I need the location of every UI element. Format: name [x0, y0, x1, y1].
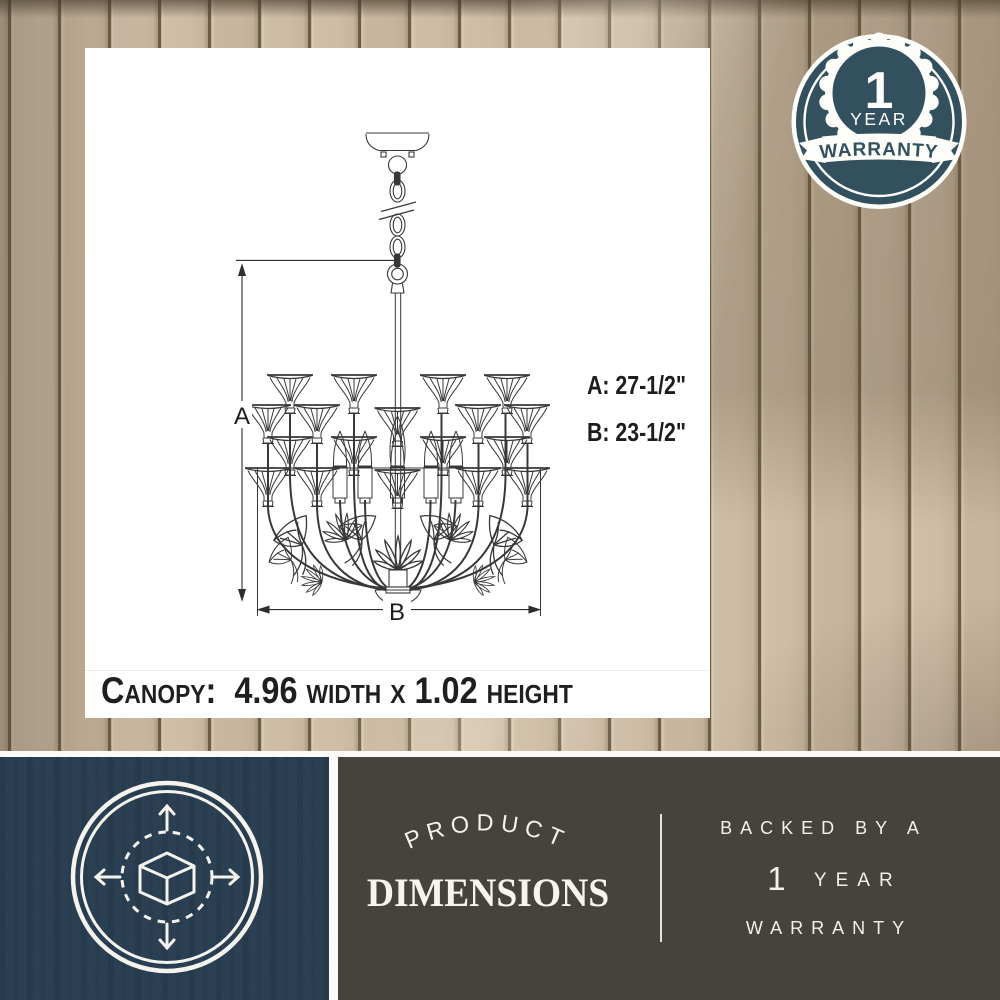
svg-text:YEAR: YEAR — [850, 109, 908, 129]
svg-text:A: A — [234, 403, 250, 430]
svg-text:B: 23-1/2": B: 23-1/2" — [587, 417, 686, 447]
svg-text:B: B — [389, 599, 405, 626]
svg-text:PRODUCT: PRODUCT — [401, 809, 573, 853]
svg-text:A: 27-1/2": A: 27-1/2" — [587, 370, 686, 400]
